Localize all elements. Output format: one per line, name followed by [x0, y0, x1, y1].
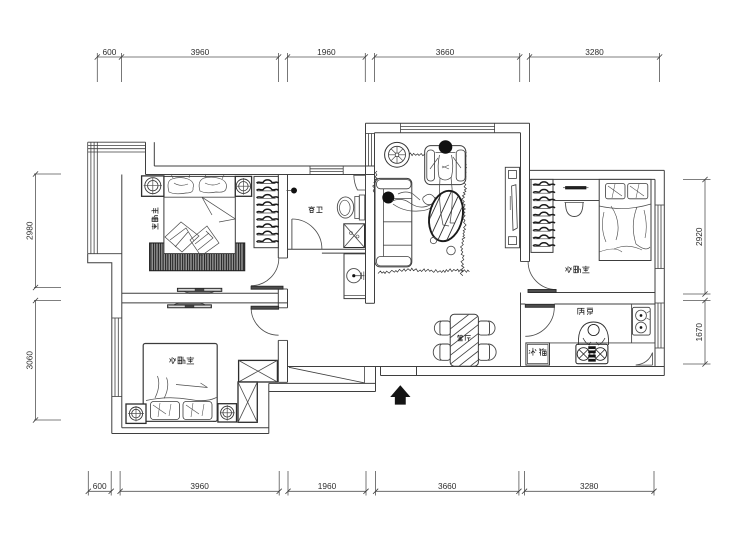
svg-text:3960: 3960: [191, 47, 210, 57]
svg-text:600: 600: [93, 481, 107, 491]
svg-text:3660: 3660: [438, 481, 457, 491]
svg-text:2980: 2980: [24, 221, 34, 240]
svg-text:3280: 3280: [580, 481, 599, 491]
svg-text:600: 600: [102, 47, 116, 57]
svg-text:2920: 2920: [694, 227, 704, 246]
svg-text:1670: 1670: [694, 323, 704, 342]
svg-text:1960: 1960: [318, 481, 337, 491]
svg-text:3280: 3280: [585, 47, 604, 57]
svg-text:1960: 1960: [317, 47, 336, 57]
svg-text:3060: 3060: [24, 351, 34, 370]
svg-text:3960: 3960: [190, 481, 209, 491]
svg-text:3660: 3660: [436, 47, 455, 57]
